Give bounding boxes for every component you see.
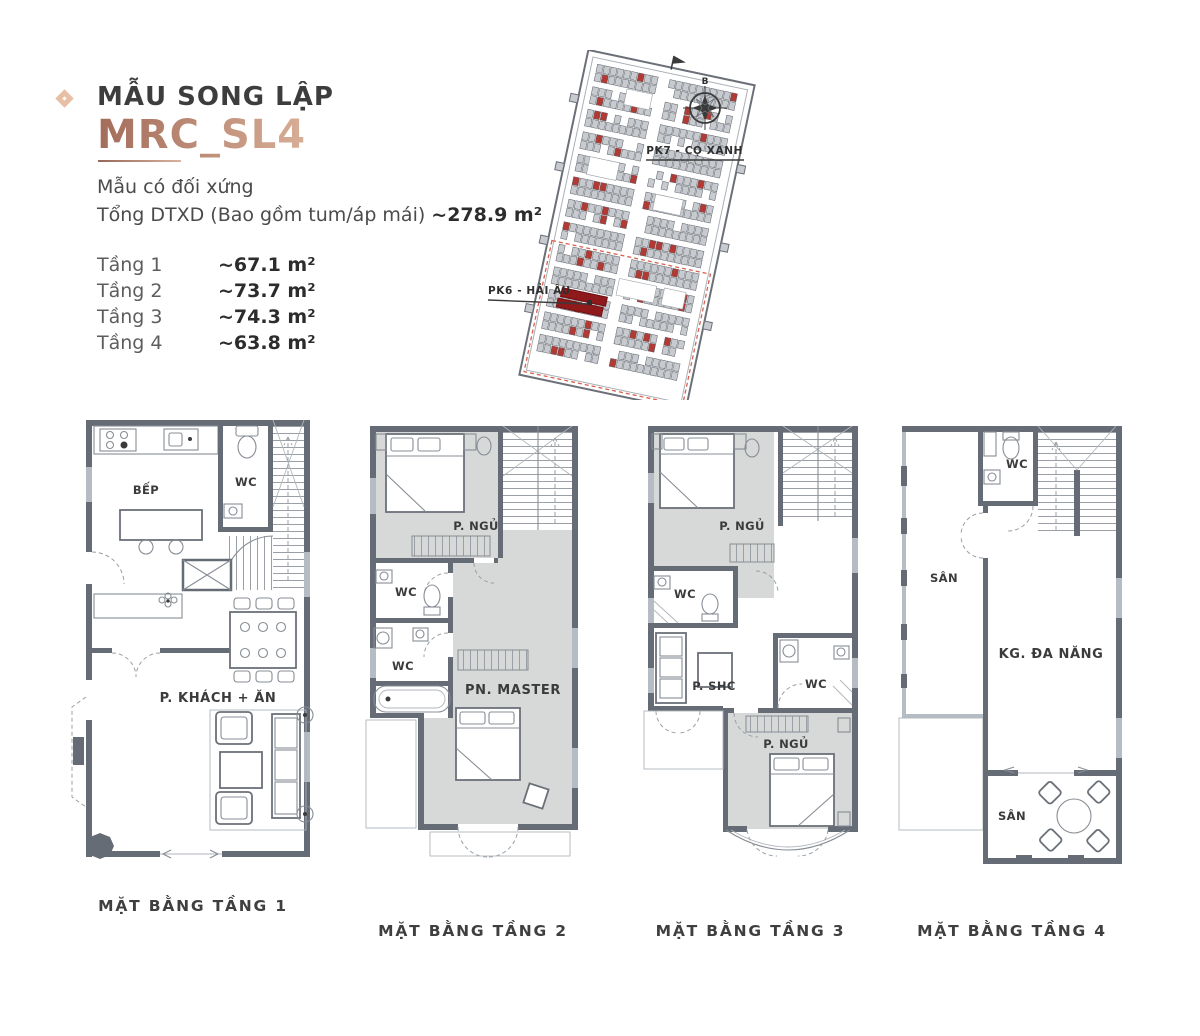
zone-label-text: PK6 - HẢI ÂU	[488, 283, 571, 297]
wardrobe	[730, 544, 774, 562]
symmetry-note: Mẫu có đối xứng	[97, 176, 254, 198]
kitchen-counter	[94, 426, 218, 454]
room-label-wc: WC	[1006, 457, 1028, 471]
bed-icon	[456, 708, 520, 780]
room-label-bedroom: P. NGỦ	[453, 517, 499, 533]
model-code: MRC_SL4	[97, 112, 306, 158]
total-area-label: Tổng DTXD (Bao gồm tum/áp mái)	[97, 204, 425, 226]
table-row: Tầng 4~63.8 m²	[97, 330, 316, 356]
room-label-family: P. SHC	[692, 679, 735, 693]
washer-icon	[374, 628, 392, 648]
compass-north-label: B	[702, 77, 709, 87]
dining-set-icon	[230, 598, 296, 682]
floor-label: Tầng 2	[97, 280, 218, 302]
stairs	[223, 420, 304, 590]
shaft	[183, 560, 231, 590]
wardrobe	[746, 716, 808, 732]
floor-plan-1: BẾP WC	[68, 412, 318, 882]
room-label-wc2: WC	[392, 659, 414, 673]
table-row: Tầng 1~67.1 m²	[97, 252, 316, 278]
room-label-wc2: WC	[805, 677, 827, 691]
round-table-set-icon	[1038, 780, 1111, 853]
floor-label: Tầng 3	[97, 306, 218, 328]
floor-area: ~67.1 m²	[218, 254, 316, 276]
total-area-line: Tổng DTXD (Bao gồm tum/áp mái)~278.9 m²	[97, 204, 542, 226]
stove-icon	[100, 429, 136, 451]
floor-plan-4: WC SÂN KG. ĐA NĂNG SÂN	[896, 418, 1128, 868]
toilet-icon	[424, 585, 440, 615]
bed-icon	[770, 754, 834, 826]
floor-label: Tầng 4	[97, 332, 218, 354]
room-label-wc1: WC	[674, 587, 696, 601]
divider-line	[98, 160, 181, 162]
bed-icon	[660, 434, 734, 508]
plant-icon	[159, 593, 177, 607]
toilet-icon	[702, 594, 718, 621]
bed-icon	[386, 434, 464, 512]
plan-caption-4: MẶT BẰNG TẦNG 4	[896, 922, 1128, 940]
zone-label-text: PK7 - CỌ XANH	[646, 145, 743, 157]
floor-label: Tầng 1	[97, 254, 218, 276]
sink-icon	[164, 429, 198, 450]
page-title: MẪU SONG LẬP	[97, 82, 334, 112]
bay-pier	[73, 737, 84, 765]
floor-area: ~73.7 m²	[218, 280, 316, 302]
room-label-wc1: WC	[395, 585, 417, 599]
diamond-icon	[55, 89, 73, 107]
room-label-terrace1: SÂN	[930, 570, 958, 585]
floor-area: ~63.8 m²	[218, 332, 316, 354]
wardrobe	[412, 536, 490, 556]
room-label-bedroom2: P. NGỦ	[763, 735, 809, 751]
site-plan-body	[512, 50, 765, 400]
brochure-page: MẪU SONG LẬP MRC_SL4 Mẫu có đối xứng Tổn…	[0, 0, 1200, 1036]
toilet-icon	[1003, 432, 1019, 459]
room-label-kitchen: BẾP	[133, 481, 159, 497]
floor-plan-3: P. NGỦ WC P. SHC WC P. NGỦ	[638, 418, 863, 868]
table-row: Tầng 3~74.3 m²	[97, 304, 316, 330]
washer-icon	[780, 640, 798, 662]
floor-plan-2: P. NGỦ WC WC PN. MASTER	[358, 418, 588, 868]
room-label-terrace2: SÂN	[998, 808, 1026, 823]
sofa-set-icon	[210, 707, 313, 830]
floor-area: ~74.3 m²	[218, 306, 316, 328]
stairs	[1038, 426, 1116, 536]
site-plan: B PK7 - CỌ XANH PK6 - HẢI ÂU	[480, 50, 800, 400]
room-label-bedroom: P. NGỦ	[719, 517, 765, 533]
table-row: Tầng 2~73.7 m²	[97, 278, 316, 304]
stairs	[503, 426, 572, 530]
room-label-master: PN. MASTER	[465, 683, 561, 698]
plan-caption-2: MẶT BẰNG TẦNG 2	[358, 922, 588, 940]
plan-caption-3: MẶT BẰNG TẦNG 3	[638, 922, 863, 940]
plan-caption-1: MẶT BẰNG TẦNG 1	[68, 897, 318, 915]
room-label-wc: WC	[235, 475, 257, 489]
wardrobe	[458, 650, 528, 670]
kitchen-island	[120, 510, 202, 554]
toilet-icon	[236, 426, 258, 458]
floor-areas-table: Tầng 1~67.1 m² Tầng 2~73.7 m² Tầng 3~74.…	[97, 252, 316, 356]
bathtub-icon	[374, 686, 450, 712]
stairs	[783, 426, 852, 521]
room-label-multi: KG. ĐA NĂNG	[999, 646, 1104, 662]
room-label-living: P. KHÁCH + ĂN	[160, 690, 277, 706]
